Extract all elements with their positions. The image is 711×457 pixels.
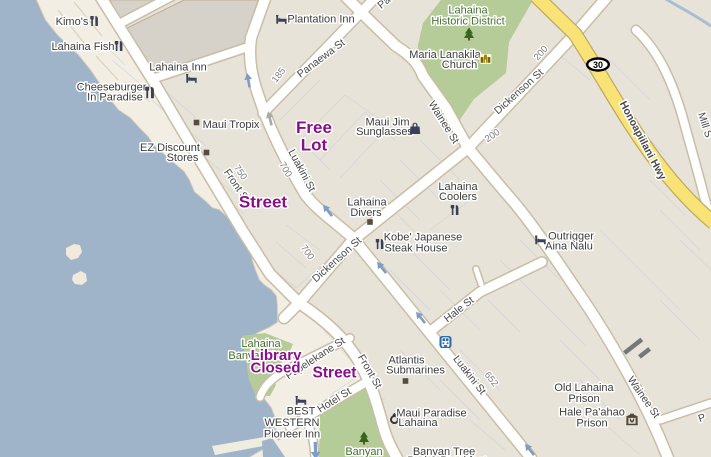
svg-text:Plantation Inn: Plantation Inn [287, 14, 354, 26]
svg-text:Church: Church [442, 59, 477, 71]
svg-text:Free: Free [296, 118, 332, 137]
svg-text:Street: Street [239, 193, 288, 212]
svg-text:Stores: Stores [167, 152, 199, 164]
svg-text:Prison: Prison [576, 418, 607, 430]
svg-text:BEST: BEST [287, 406, 316, 418]
svg-text:Divers: Divers [350, 207, 382, 219]
svg-text:Banyan: Banyan [345, 446, 382, 457]
svg-text:Lahaina: Lahaina [398, 417, 438, 429]
svg-text:Closed: Closed [250, 360, 300, 377]
svg-text:Maui Tropix: Maui Tropix [203, 119, 260, 131]
svg-text:Lahaina Fish: Lahaina Fish [52, 41, 115, 53]
svg-text:Lot: Lot [301, 136, 328, 155]
svg-text:Pioneer Inn: Pioneer Inn [264, 429, 320, 441]
svg-text:Prison: Prison [568, 393, 599, 405]
svg-text:Kimo's: Kimo's [56, 16, 89, 28]
svg-text:Sunglasses: Sunglasses [356, 126, 413, 138]
svg-text:Submarines: Submarines [386, 365, 445, 377]
svg-text:Aina Nalu: Aina Nalu [545, 241, 593, 253]
svg-text:Steak House: Steak House [385, 243, 448, 255]
svg-text:Lahaina Inn: Lahaina Inn [149, 62, 207, 74]
svg-text:Coolers: Coolers [439, 191, 477, 203]
svg-text:30: 30 [593, 60, 603, 70]
svg-text:WESTERN: WESTERN [265, 417, 320, 429]
svg-text:In Paradise: In Paradise [87, 92, 143, 104]
svg-text:Historic District: Historic District [431, 16, 504, 28]
svg-text:Street: Street [313, 365, 357, 382]
